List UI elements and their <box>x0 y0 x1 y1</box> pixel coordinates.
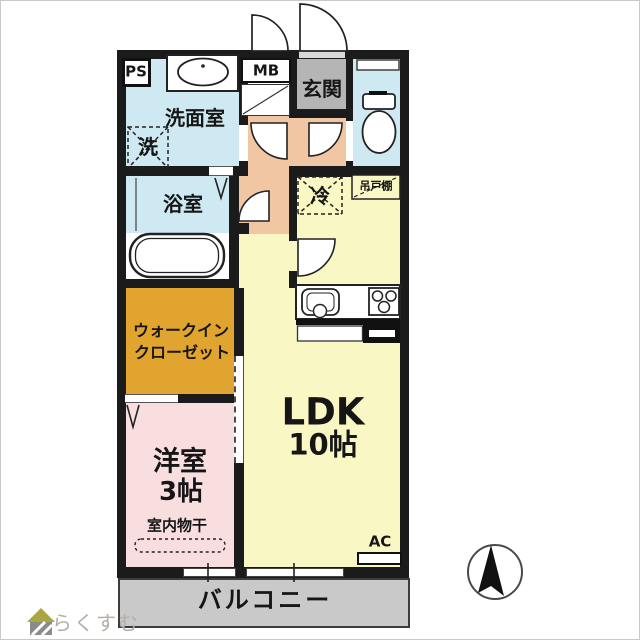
door-swing-icon <box>298 239 335 276</box>
door-swing-icon <box>309 123 342 156</box>
door-swing-icon <box>300 4 347 51</box>
indoor-drying-label: 室内物干 <box>147 519 207 534</box>
bedroom-label: 洋室 <box>153 449 207 476</box>
bedroom-size-label: 3帖 <box>159 479 203 505</box>
door-swing-icon <box>239 191 269 221</box>
ldk-label: LDK <box>282 394 365 431</box>
toilet-window <box>357 60 399 70</box>
door-swing-icon <box>251 123 287 159</box>
genkan-label: 玄関 <box>302 79 342 99</box>
door-swing-icon <box>252 15 288 51</box>
toilet-bowl-icon <box>363 111 396 153</box>
balcony-label: バルコニー <box>198 588 333 612</box>
cupboard-label: 吊戸棚 <box>360 181 393 192</box>
ps-label: PS <box>125 65 147 80</box>
bathroom-label: 浴室 <box>163 194 203 214</box>
logo-text: らくすむ <box>52 613 140 633</box>
floorplan-image: PS MB 玄関 洗面室 洗 浴室 ウォークイン クローゼット 洋室 3帖 室内… <box>0 0 640 640</box>
wic-label-line2: クローゼット <box>134 345 230 361</box>
toilet-tank-icon <box>363 94 395 109</box>
cabinet-diagonal <box>243 86 288 114</box>
folding-door-icon <box>215 178 227 198</box>
ldk-size-label: 10帖 <box>288 431 357 460</box>
mb-label: MB <box>253 64 279 79</box>
drying-pole-icon <box>135 539 225 552</box>
washroom-label: 洗面室 <box>165 108 225 128</box>
ac-label: AC <box>369 535 392 550</box>
logo-house-icon <box>27 608 55 635</box>
fridge-label: 冷 <box>310 186 330 206</box>
vanity-basin-icon <box>178 59 228 86</box>
compass-icon <box>468 545 522 599</box>
folding-door-icon <box>127 405 139 427</box>
wic-label-line1: ウォークイン <box>133 323 229 339</box>
washer-label: 洗 <box>138 137 158 157</box>
